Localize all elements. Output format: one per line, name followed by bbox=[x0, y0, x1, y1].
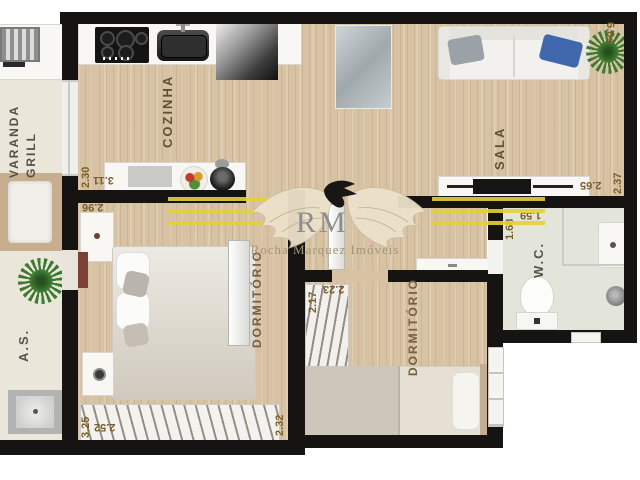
wc-window bbox=[571, 332, 601, 343]
varanda-label-line2: GRILL bbox=[24, 132, 38, 178]
toilet-tank bbox=[516, 312, 558, 330]
fruit-bowl-icon bbox=[180, 166, 208, 193]
kitchen-sink-icon bbox=[157, 30, 209, 61]
sofa-icon bbox=[438, 26, 590, 80]
shower-head-icon bbox=[606, 286, 626, 306]
bench-icon bbox=[0, 173, 62, 251]
dim-dorm2-width: 2.23 bbox=[323, 283, 344, 295]
soundbar-icon bbox=[447, 185, 473, 188]
toilet-icon bbox=[520, 276, 554, 316]
grill-icon bbox=[0, 27, 40, 62]
watermark-bar bbox=[432, 221, 545, 225]
cooktop-icon bbox=[95, 27, 149, 63]
wall-left-divider bbox=[62, 12, 78, 455]
tv-icon bbox=[473, 179, 531, 194]
fridge-icon bbox=[216, 24, 278, 80]
sofa-seat-divider bbox=[513, 35, 515, 77]
wall-dorm2-bottom bbox=[290, 435, 503, 448]
dim-cozinha-depth: 2.30 bbox=[80, 156, 92, 188]
watermark-bar bbox=[432, 197, 545, 201]
service-door-gap bbox=[62, 250, 78, 290]
wall-top bbox=[60, 12, 637, 24]
cooktop-knobs bbox=[103, 57, 133, 60]
pillow-icon bbox=[452, 372, 480, 430]
blanket-icon bbox=[306, 366, 400, 436]
gray-cushion-icon bbox=[447, 34, 485, 66]
laundry-tub-icon bbox=[8, 390, 62, 434]
watermark-bar bbox=[432, 209, 545, 213]
bedroom2-window bbox=[488, 347, 504, 427]
varanda-label-line1: VARANDA bbox=[7, 105, 21, 178]
dim-dorm2-depth: 2.17 bbox=[307, 283, 319, 313]
dim-dorm1-depth: 3.25 bbox=[80, 406, 92, 438]
varanda-label: VARANDA GRILL bbox=[6, 62, 40, 178]
dim-cozinha-width: 3.11 bbox=[93, 174, 114, 186]
counter-inset bbox=[128, 166, 172, 187]
dim-dorm1-width: 2.52 bbox=[94, 421, 115, 433]
flush-button-icon bbox=[534, 318, 540, 324]
dim-dorm1-side: 2.32 bbox=[274, 404, 286, 436]
tv-stand-icon bbox=[438, 176, 590, 198]
balcony-glass-door bbox=[62, 80, 78, 176]
bedroom2-door-gap bbox=[332, 270, 388, 282]
sala-label: SALA bbox=[492, 110, 507, 170]
wc-door-gap bbox=[488, 240, 503, 274]
dim-wc-depth: 1.68 bbox=[504, 210, 516, 240]
accent-pillow-icon bbox=[122, 270, 150, 298]
burner-icon bbox=[135, 32, 148, 45]
watermark-company: Rocha Marquez Imóveis bbox=[220, 242, 430, 258]
nightstand-icon bbox=[82, 352, 114, 396]
dormitorio1-label: DORMITÓRIO bbox=[250, 258, 264, 348]
cozinha-label: COZINHA bbox=[160, 78, 175, 148]
drain-icon bbox=[610, 242, 616, 248]
plant-icon bbox=[18, 258, 64, 304]
wall-bottom-left bbox=[0, 440, 305, 455]
door-knob-icon bbox=[94, 233, 100, 239]
dim-sala-depth: 2.37 bbox=[612, 162, 624, 194]
wall-wc-bottom bbox=[487, 330, 637, 343]
burner-icon bbox=[100, 31, 115, 46]
bench-cushion bbox=[8, 181, 52, 243]
lamp-icon bbox=[93, 368, 106, 381]
dim-sala-side: 6.64 bbox=[604, 22, 616, 54]
sink-basin bbox=[161, 35, 207, 58]
wc-label: W.C. bbox=[531, 226, 546, 278]
dormitorio2-label: DORMITÓRIO bbox=[406, 286, 420, 376]
shower-glass bbox=[562, 264, 626, 266]
soundbar-icon bbox=[533, 185, 573, 188]
service-door-leaf bbox=[78, 252, 88, 288]
dim-sala-width: 2.65 bbox=[580, 179, 601, 191]
servico-label: A.S. bbox=[16, 322, 31, 362]
laundry-tub-drain bbox=[33, 409, 38, 414]
shower-glass bbox=[562, 208, 564, 266]
accent-pillow-icon bbox=[122, 322, 149, 348]
dresser-handle-icon bbox=[448, 264, 457, 267]
watermark-initials: RM bbox=[296, 206, 386, 240]
dining-table-icon bbox=[335, 25, 392, 109]
dim-dorm1-top: 2.96 bbox=[82, 201, 103, 213]
floorplan-canvas: VARANDA GRILL COZINHA SALA W.C. A.S. DOR… bbox=[0, 0, 640, 480]
wall-right bbox=[624, 12, 637, 343]
